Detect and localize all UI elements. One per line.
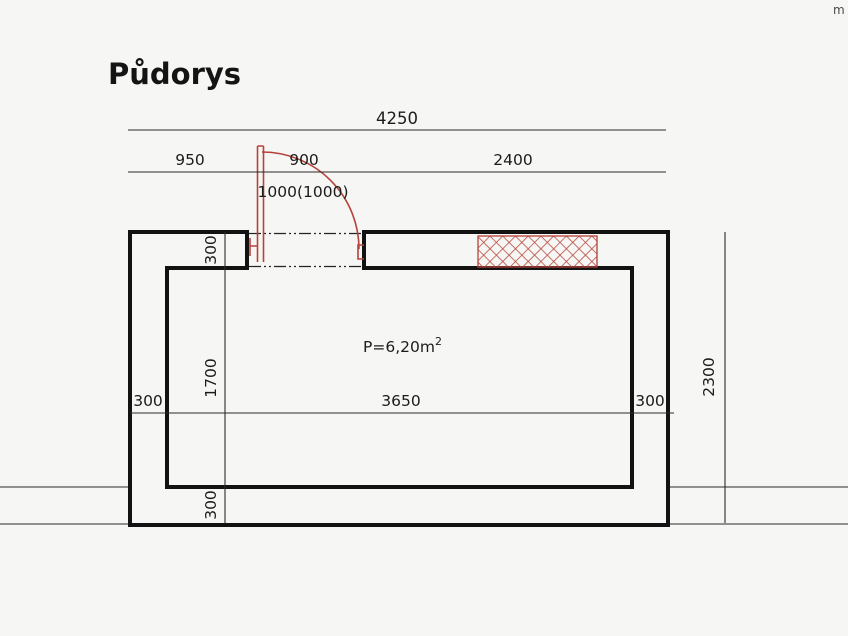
dim-inner-height: 1700 xyxy=(202,358,220,397)
dim-seg-left: 950 xyxy=(175,151,205,169)
corner-text-fragment: m xyxy=(833,3,845,17)
dim-seg-door: 900 xyxy=(289,151,319,169)
dim-door-detail: 1000(1000) xyxy=(258,183,349,201)
dim-right-wall: 300 xyxy=(635,392,665,410)
hatch-rect xyxy=(478,236,597,267)
room-area-value: P=6,20m xyxy=(363,338,435,356)
dim-seg-right: 2400 xyxy=(493,151,532,169)
dim-inner-width: 3650 xyxy=(381,392,420,410)
dim-wall-top: 300 xyxy=(202,235,220,265)
plan-title: Půdorys xyxy=(108,57,241,91)
dim-top-total: 4250 xyxy=(376,109,418,128)
dim-wall-bottom: 300 xyxy=(202,490,220,520)
door-opening xyxy=(249,228,362,272)
room-area-superscript: 2 xyxy=(435,335,442,348)
room-area-label: P=6,20m2 xyxy=(363,335,442,356)
inner-wall xyxy=(167,268,632,487)
masonry-hatch xyxy=(478,236,597,267)
floor-plan-canvas: Půdorys m 4250 950 900 2400 1000(1000) 3… xyxy=(0,0,848,636)
dim-side-total: 2300 xyxy=(700,357,718,396)
dim-left-wall: 300 xyxy=(133,392,163,410)
floor-plan-svg: Půdorys m 4250 950 900 2400 1000(1000) 3… xyxy=(0,0,848,636)
